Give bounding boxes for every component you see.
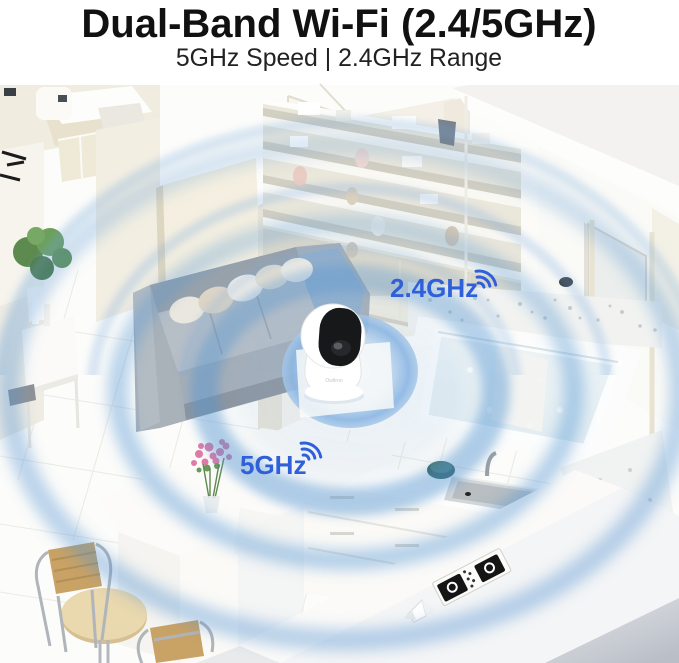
svg-text:Owltron: Owltron <box>325 378 342 384</box>
svg-text:5GHz: 5GHz <box>240 450 306 480</box>
svg-text:Dual-Band Wi-Fi (2.4/5GHz): Dual-Band Wi-Fi (2.4/5GHz) <box>81 2 596 46</box>
svg-text:2.4GHz: 2.4GHz <box>390 273 478 303</box>
svg-text:5GHz Speed | 2.4GHz Range: 5GHz Speed | 2.4GHz Range <box>176 45 502 72</box>
